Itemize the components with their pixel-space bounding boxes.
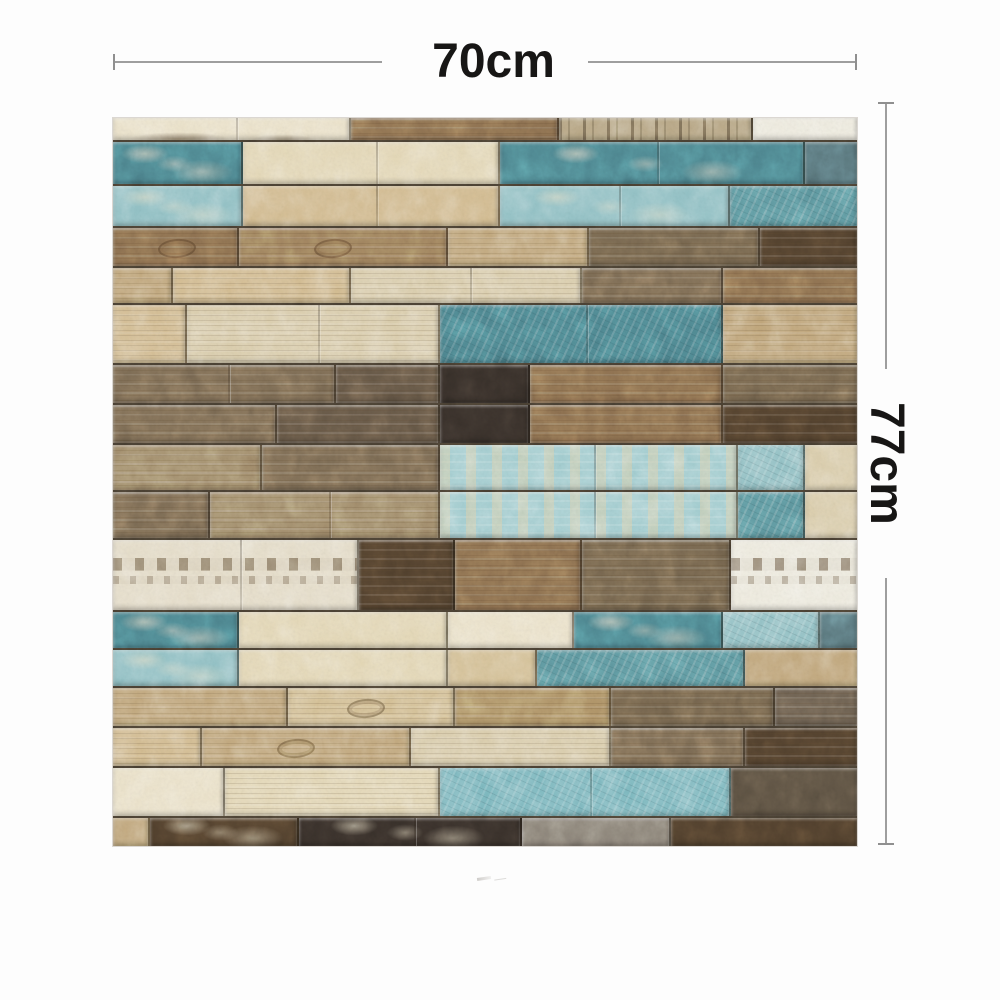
- height-dimension: 77cm: [864, 102, 908, 845]
- plank-tealGhost: [440, 492, 738, 538]
- width-label: 70cm: [432, 38, 555, 86]
- plank-beige: [173, 268, 352, 303]
- plank-sand: [288, 688, 455, 726]
- plank-tealLight: [113, 186, 243, 226]
- plank-slate: [805, 142, 857, 184]
- plank-grayBrown: [611, 688, 775, 726]
- panel-row: [113, 728, 857, 768]
- plank-dkGrayBrown: [731, 768, 857, 816]
- plank-brown: [113, 228, 239, 266]
- plank-pale: [411, 728, 612, 766]
- plank-teal: [537, 650, 745, 686]
- plank-grayBrown: [589, 228, 760, 266]
- panel-row: [113, 768, 857, 818]
- plank-cream: [239, 612, 447, 648]
- plank-beige: [113, 728, 202, 766]
- dimension-endcap-bottom: [878, 843, 894, 845]
- plank-tealGhost: [440, 445, 738, 490]
- plank-white: [753, 118, 857, 140]
- plank-brownLight: [239, 228, 447, 266]
- plank-tealDark: [440, 305, 723, 363]
- plank-dkBrown: [150, 818, 299, 846]
- panel-row: [113, 492, 857, 540]
- plank-pale: [805, 492, 857, 538]
- plank-taupe: [113, 492, 210, 538]
- plank-tealLight: [500, 186, 731, 226]
- plank-taupe: [611, 728, 745, 766]
- plank-dkBrown: [723, 405, 857, 443]
- plank-creamPale: [113, 768, 225, 816]
- plank-teal: [730, 186, 856, 226]
- product-image: 70cm 77cm: [0, 0, 1000, 1000]
- plank-tealLight: [738, 445, 805, 490]
- panel-row: [113, 228, 857, 268]
- plank-black: [440, 405, 529, 443]
- plank-tan: [113, 268, 173, 303]
- plank-grayBrown: [723, 365, 857, 403]
- plank-gray: [522, 818, 671, 846]
- plank-beige: [243, 186, 500, 226]
- plank-khaki: [455, 688, 611, 726]
- panel-row: [113, 445, 857, 492]
- panel-row: [113, 818, 857, 846]
- panel-row: [113, 688, 857, 728]
- panel-row: [113, 540, 857, 612]
- plank-beige: [113, 305, 187, 363]
- plank-brown: [530, 365, 723, 403]
- plank-tan: [202, 728, 410, 766]
- plank-tealDark: [113, 142, 243, 184]
- plank-dappleBase: [113, 540, 359, 610]
- dimension-line-right: [588, 61, 855, 63]
- plank-creamPale: [113, 118, 351, 140]
- plank-dkBrown: [745, 728, 857, 766]
- plank-brown: [351, 118, 559, 140]
- plank-taupe: [262, 445, 441, 490]
- dimension-line-bottom: [885, 578, 887, 843]
- plank-black: [299, 818, 522, 846]
- plank-tealLight: [113, 650, 239, 686]
- plank-black: [440, 365, 529, 403]
- panel-row: [113, 118, 857, 142]
- plank-taupe: [113, 365, 336, 403]
- panel-row: [113, 305, 857, 365]
- plank-tan: [113, 688, 288, 726]
- plank-tan: [448, 228, 589, 266]
- plank-creamPale: [448, 612, 574, 648]
- plank-pale: [805, 445, 857, 490]
- plank-grayBrown: [582, 540, 731, 610]
- plank-teal: [738, 492, 805, 538]
- plank-cream: [239, 650, 447, 686]
- panel-row: [113, 268, 857, 305]
- dimension-line-left: [115, 61, 382, 63]
- plank-white: [731, 540, 857, 610]
- dimension-line-top: [885, 104, 887, 369]
- plank-streakBase: [559, 118, 752, 140]
- panel-row: [113, 405, 857, 445]
- panel-row: [113, 365, 857, 405]
- plank-tealBright: [440, 768, 730, 816]
- plank-brown: [530, 405, 723, 443]
- plank-tealLight: [723, 612, 820, 648]
- plank-dkBrown: [671, 818, 857, 846]
- plank-tealDark: [500, 142, 805, 184]
- panel-rows: [113, 118, 857, 846]
- plank-dkGray: [775, 688, 857, 726]
- plank-cream: [243, 142, 500, 184]
- panel-row: [113, 186, 857, 228]
- watermark-artifact: [477, 876, 491, 881]
- plank-taupe: [113, 405, 277, 443]
- dimension-endcap-right: [855, 54, 857, 70]
- plank-dkBrown: [760, 228, 857, 266]
- plank-tan: [723, 305, 857, 363]
- plank-taupe: [582, 268, 723, 303]
- plank-tan: [113, 818, 150, 846]
- plank-brown: [455, 540, 581, 610]
- plank-slate: [820, 612, 857, 648]
- plank-tealDark: [113, 612, 239, 648]
- plank-brown: [723, 268, 857, 303]
- height-label: 77cm: [862, 402, 910, 525]
- plank-dkBrown: [359, 540, 456, 610]
- plank-taupeLight: [113, 445, 262, 490]
- plank-tan: [745, 650, 857, 686]
- panel-row: [113, 612, 857, 650]
- plank-tealDark: [574, 612, 723, 648]
- plank-sand: [448, 650, 537, 686]
- plank-pale: [351, 268, 582, 303]
- plank-pale: [187, 305, 440, 363]
- wall-panel: [113, 118, 857, 846]
- plank-cream: [225, 768, 441, 816]
- width-dimension: 70cm: [113, 38, 857, 86]
- panel-row: [113, 142, 857, 186]
- plank-taupeLight: [210, 492, 441, 538]
- plank-dkTaupe: [336, 365, 440, 403]
- plank-dkTaupe: [277, 405, 441, 443]
- panel-row: [113, 650, 857, 688]
